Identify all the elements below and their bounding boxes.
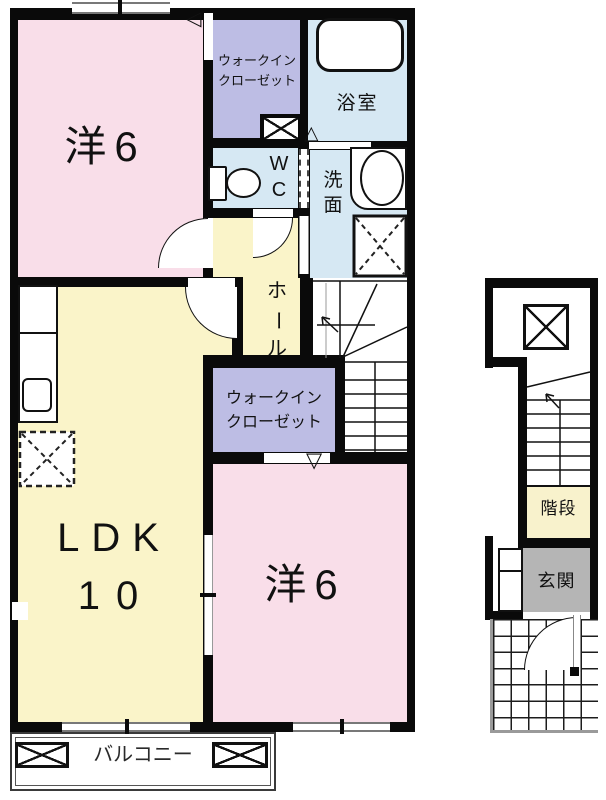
bedroom-top-label: 洋6 (38, 122, 172, 172)
wc-line2: C (272, 177, 286, 203)
annex-landing-xbox (523, 304, 569, 350)
washer-space-icon (352, 214, 408, 278)
washroom-char1: 洗 (323, 169, 342, 194)
window-bedroom-bottom-tick (340, 719, 344, 734)
walkin-closet-top-line2: クローゼット (218, 71, 296, 91)
toilet-tank (208, 166, 227, 201)
annex-wall-left-lower (485, 536, 493, 620)
wc-label: W C (264, 148, 294, 206)
ldk-size-label: 10 (28, 572, 188, 620)
shoe-cabinet-divider (500, 570, 521, 572)
annex-entrance-label: 玄関 (523, 566, 590, 596)
door-triangle-closet-top-icon: ◁ (186, 9, 201, 29)
kitchen-counter-divider (20, 332, 56, 334)
entrance-door-hinge (570, 667, 579, 676)
ldk-label: LDK (28, 514, 188, 562)
kitchen-sink (22, 378, 52, 412)
entrance-door-leaf (573, 615, 581, 672)
balcony-label: バルコニー (78, 742, 208, 768)
washroom-char2: 面 (323, 194, 342, 219)
porch-edge-bottom (493, 730, 598, 733)
walkin-closet-bottom-line1: ウォークイン (226, 387, 322, 411)
partition-wc-washroom (299, 149, 309, 208)
toilet-bowl (226, 168, 261, 198)
porch-edge-left (490, 619, 493, 733)
sliding-door-balcony-tick (125, 719, 129, 734)
floorplan-canvas: ◁ △ ▽ (0, 0, 606, 800)
hall-char1: ホ (267, 277, 287, 306)
walkin-closet-bottom-line2: クローゼット (226, 411, 322, 435)
doorway-wc (253, 209, 293, 217)
duct-xbox (264, 118, 298, 139)
window-ldk-left (12, 602, 28, 620)
balcony-xbox-left (15, 742, 69, 768)
bathtub (316, 18, 404, 72)
door-triangle-bath-icon: △ (304, 124, 319, 143)
shoe-cabinet (498, 548, 523, 612)
annex-stairs-label: 階段 (527, 492, 590, 526)
hall-char2: ー (263, 310, 292, 330)
washroom-label: 洗 面 (319, 166, 347, 222)
walkin-closet-top-label: ウォークイン クローゼット (211, 48, 303, 94)
hall-char3: ル (267, 335, 287, 364)
sink-basin (360, 150, 404, 206)
wc-line1: W (270, 151, 289, 177)
hall-label: ホ ー ル (263, 268, 291, 372)
sliding-door-washroom (299, 216, 309, 274)
balcony-xbox-right (212, 742, 268, 768)
refrigerator-space-icon (18, 430, 76, 488)
door-triangle-closet-bottom-icon: ▽ (306, 450, 322, 471)
wall-left (10, 8, 18, 732)
annex-wall-stairs-entrance (518, 538, 598, 548)
bedroom-bottom-label: 洋6 (238, 560, 372, 610)
window-top-tick (118, 0, 122, 16)
sliding-door-ldk-tick (200, 593, 216, 597)
walkin-closet-bottom-label: ウォークイン クローゼット (211, 384, 337, 438)
walkin-closet-top-line1: ウォークイン (218, 51, 296, 71)
doorway-ldk-hall (188, 278, 235, 287)
bath-label: 浴室 (308, 90, 407, 118)
